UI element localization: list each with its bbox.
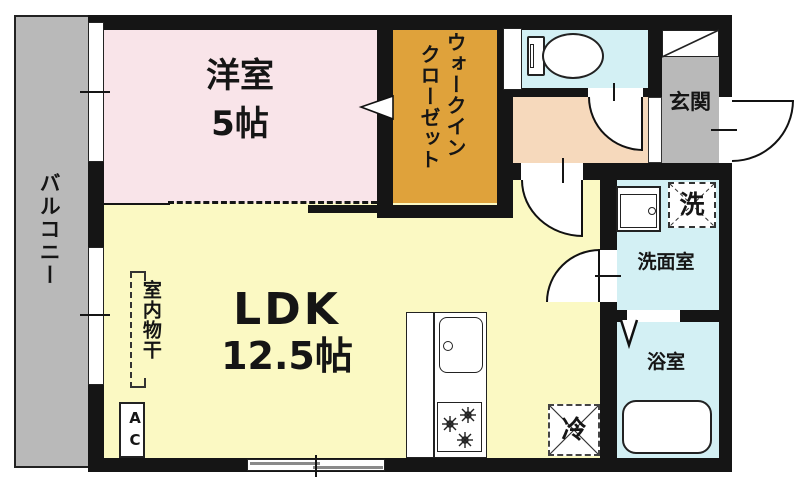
bathroom-label: 浴室 (617, 352, 715, 373)
vanity-faucet (648, 207, 656, 215)
window-ldk-balcony (88, 247, 104, 385)
bathtub-icon (622, 400, 712, 454)
washer-label: 洗 (668, 182, 716, 228)
wall-bath-divider-right (680, 310, 719, 322)
wall-washroom-left-lower (600, 302, 617, 458)
folding-door-icon (618, 318, 640, 348)
wall-western-wic (377, 30, 393, 213)
genkan-label: 玄関 (660, 91, 720, 114)
fridge-label: 冷 (548, 404, 600, 456)
ac-label: AC (121, 408, 143, 454)
window-sash (250, 462, 320, 465)
wall-hall-bottom-left (513, 163, 521, 180)
shoe-cabinet-diagonal (662, 30, 719, 57)
toilet-door-opening (588, 88, 643, 97)
wall-right-lower (719, 163, 732, 458)
wic-opening-arrow-icon (359, 95, 394, 120)
kitchen-faucet (443, 341, 453, 351)
washroom-label: 洗面室 (617, 252, 715, 273)
wic-label-line1: ウォークイン (444, 32, 466, 158)
wall-toilet-genkan (648, 30, 662, 97)
partition-line-dashed (168, 201, 377, 204)
entrance-door-arc (732, 100, 794, 162)
wall-wic-bottom (377, 205, 513, 218)
pipe-niche (503, 28, 522, 90)
toilet-bowl-icon (542, 33, 604, 79)
drying-pole-hook (144, 378, 146, 388)
door-tick (562, 158, 564, 183)
wall-partition-thick (308, 205, 377, 213)
ldk-size: 12.5帖 (187, 336, 387, 378)
door-tick (595, 275, 621, 277)
window-tick (315, 455, 317, 477)
floor-plan: 洗 冷 AC 室内物干 洋室 5帖 ウォークイン クローゼット LDK 12.5… (0, 0, 800, 492)
window-tick (80, 314, 110, 316)
balcony-label: バルコニー (37, 172, 60, 287)
ldk-door-opening (521, 163, 583, 180)
door-tick (613, 83, 615, 101)
wall-hall-bottom-right (583, 163, 732, 180)
partition-line-solid (104, 203, 170, 205)
window-sash (313, 466, 383, 469)
wic-label-line2: クローゼット (418, 44, 440, 170)
wall-top (88, 15, 732, 30)
toilet-tank-lever (530, 44, 534, 68)
wall-right-upper (719, 30, 732, 97)
window-tick (80, 91, 110, 93)
western-room-label: 洋室 (140, 58, 340, 95)
kitchen-counter-divider (433, 313, 435, 457)
indoor-drying-label: 室内物干 (140, 280, 161, 360)
wall-washroom-left-upper (600, 180, 617, 250)
western-room-size: 5帖 (140, 106, 340, 143)
ldk-label: LDK (187, 286, 387, 334)
door-tick (711, 129, 737, 131)
wall-bottom (88, 458, 732, 472)
stove-burners (437, 402, 482, 452)
drying-pole-line (130, 272, 132, 388)
